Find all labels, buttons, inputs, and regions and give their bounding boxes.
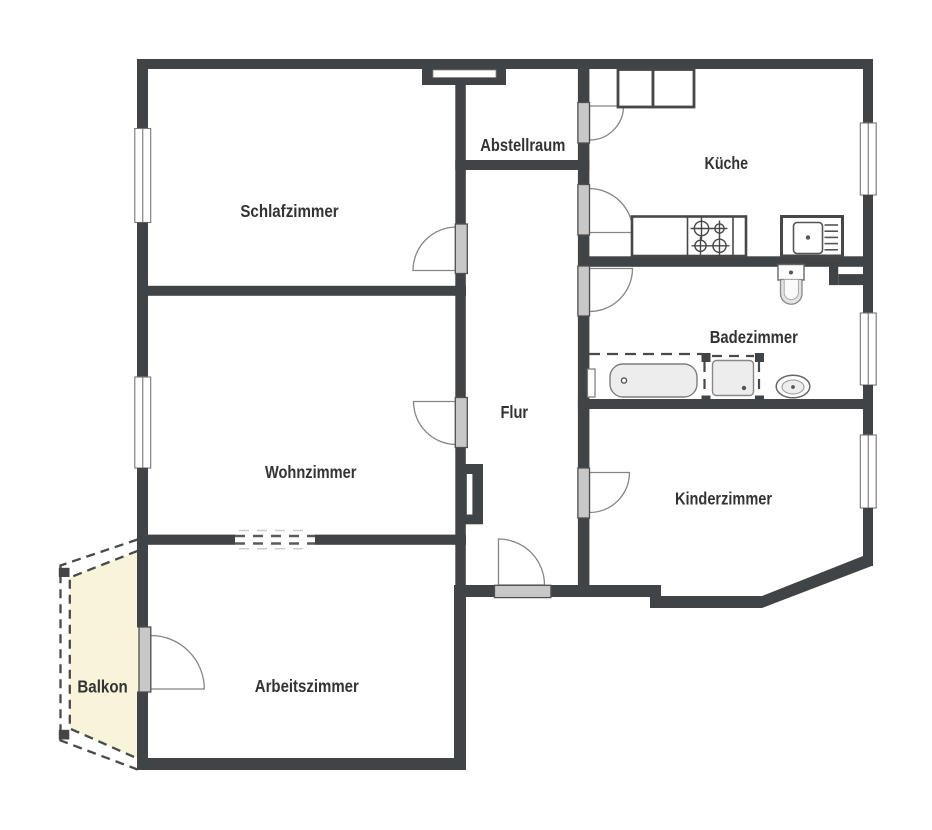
svg-text:Schlafzimmer: Schlafzimmer (240, 201, 338, 221)
svg-text:Flur: Flur (500, 402, 528, 422)
svg-text:Balkon: Balkon (77, 676, 127, 696)
svg-text:Badezimmer: Badezimmer (710, 327, 798, 347)
svg-text:Arbeitszimmer: Arbeitszimmer (255, 676, 359, 696)
svg-text:Kinderzimmer: Kinderzimmer (675, 489, 772, 509)
svg-text:Abstellraum: Abstellraum (480, 135, 565, 155)
svg-text:Küche: Küche (705, 153, 749, 173)
svg-text:Wohnzimmer: Wohnzimmer (265, 462, 357, 482)
